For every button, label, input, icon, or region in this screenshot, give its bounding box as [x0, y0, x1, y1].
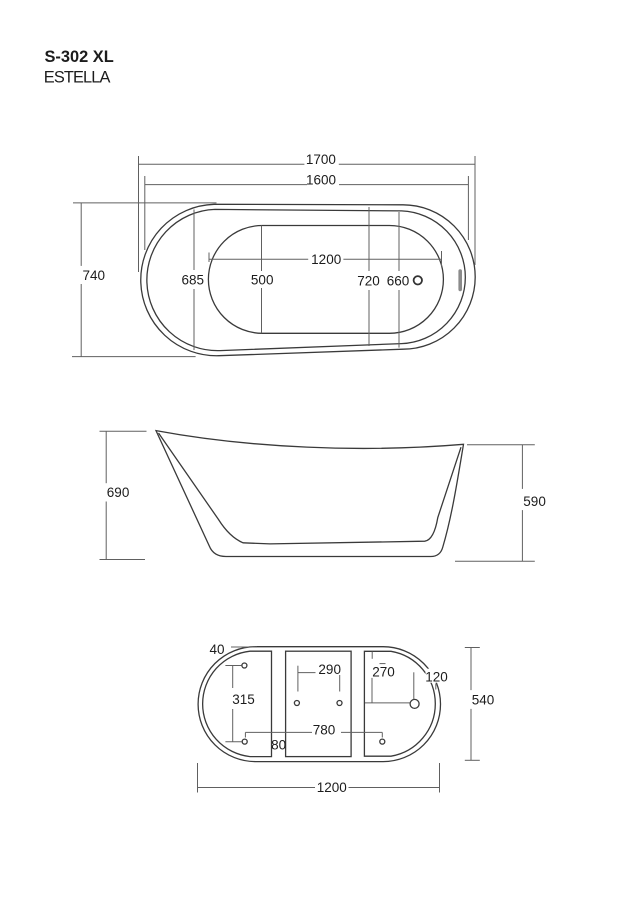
svg-text:S-302 XL: S-302 XL — [45, 48, 114, 66]
svg-text:40: 40 — [209, 642, 224, 657]
svg-text:685: 685 — [182, 273, 205, 288]
svg-text:590: 590 — [523, 494, 546, 509]
svg-text:690: 690 — [107, 485, 130, 500]
svg-text:ESTELLA: ESTELLA — [44, 68, 111, 86]
svg-text:1600: 1600 — [306, 172, 336, 187]
svg-text:1200: 1200 — [317, 780, 347, 795]
svg-text:315: 315 — [232, 692, 255, 707]
svg-text:1200: 1200 — [311, 252, 341, 267]
svg-text:660: 660 — [387, 274, 410, 289]
svg-text:290: 290 — [318, 662, 341, 677]
svg-text:1700: 1700 — [306, 152, 336, 167]
svg-text:80: 80 — [271, 737, 286, 752]
svg-text:540: 540 — [472, 693, 495, 708]
svg-text:120: 120 — [425, 670, 448, 685]
svg-text:780: 780 — [313, 722, 336, 737]
svg-text:500: 500 — [251, 272, 274, 287]
svg-text:270: 270 — [372, 664, 395, 679]
svg-text:740: 740 — [83, 268, 106, 283]
svg-text:720: 720 — [357, 274, 380, 289]
